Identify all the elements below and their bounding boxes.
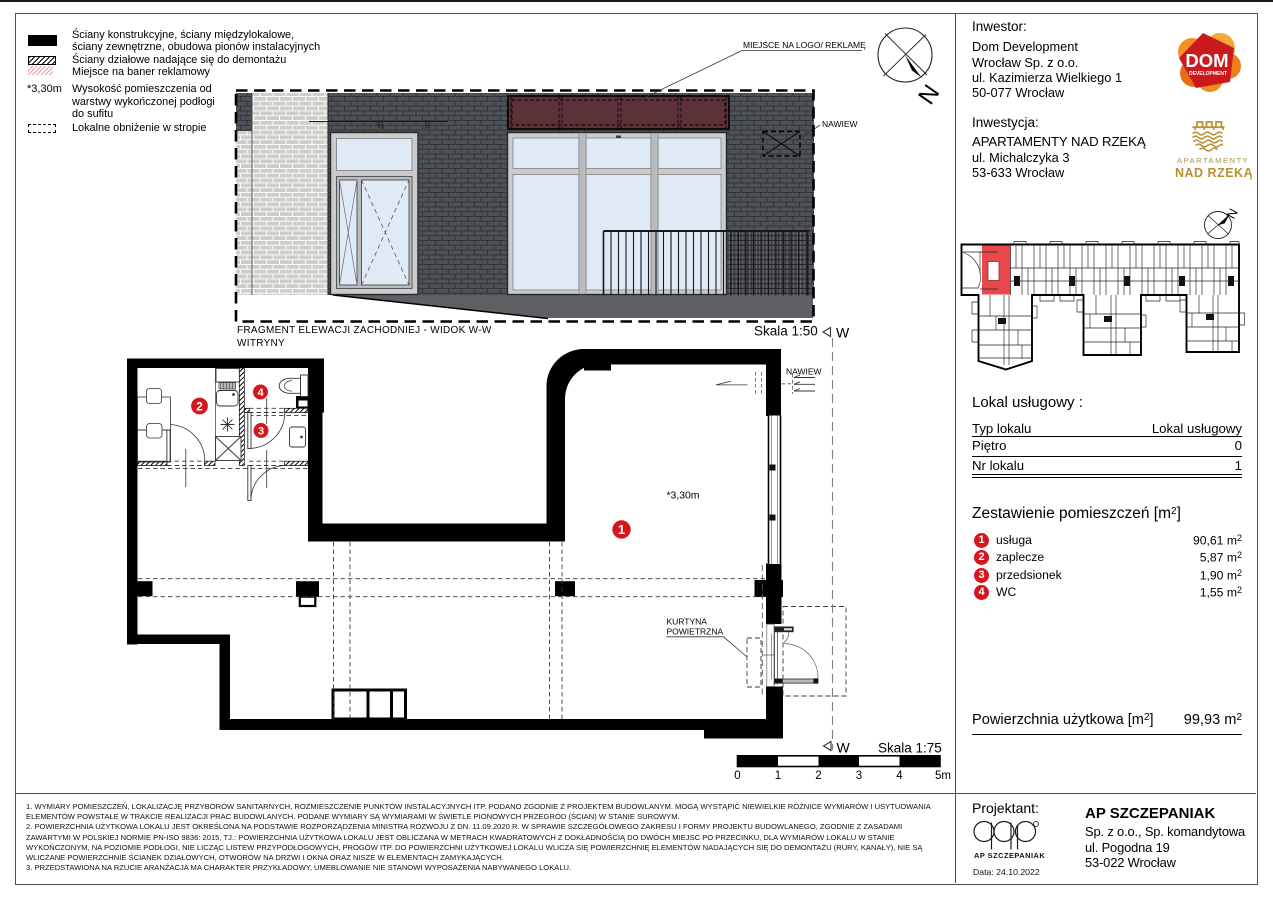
svg-text:W: W [837,740,851,756]
svg-text:APARTAMENTY: APARTAMENTY [1177,156,1249,165]
svg-text:NAWIEW: NAWIEW [822,119,858,129]
svg-text:0: 0 [734,770,740,782]
svg-text:DOM: DOM [1185,50,1228,71]
svg-text:Data: 24.10.2022: Data: 24.10.2022 [973,867,1040,877]
svg-text:AP SZCZEPANIAK: AP SZCZEPANIAK [974,851,1045,860]
svg-text:MIEJSCE NA LOGO/ REKLAMĘ: MIEJSCE NA LOGO/ REKLAMĘ [743,40,866,50]
svg-text:N: N [912,79,944,109]
svg-text:3: 3 [856,770,862,782]
svg-text:1: 1 [618,522,625,537]
svg-text:4: 4 [896,770,903,782]
svg-text:1: 1 [775,770,781,782]
svg-text:3: 3 [258,425,264,437]
svg-text:NAWIEW: NAWIEW [786,367,822,377]
svg-text:5m: 5m [935,770,951,782]
svg-text:DEVELOPMENT: DEVELOPMENT [1189,71,1227,77]
svg-text:2: 2 [196,399,203,413]
svg-text:4: 4 [257,387,264,399]
svg-text:NAD RZEKĄ: NAD RZEKĄ [1175,166,1253,180]
svg-text:POWIETRZNA: POWIETRZNA [667,627,724,637]
svg-text:*3,30m: *3,30m [667,491,700,502]
svg-text:Skala 1:75: Skala 1:75 [878,741,942,756]
svg-text:2: 2 [815,770,821,782]
svg-text:KURTYNA: KURTYNA [667,617,708,627]
